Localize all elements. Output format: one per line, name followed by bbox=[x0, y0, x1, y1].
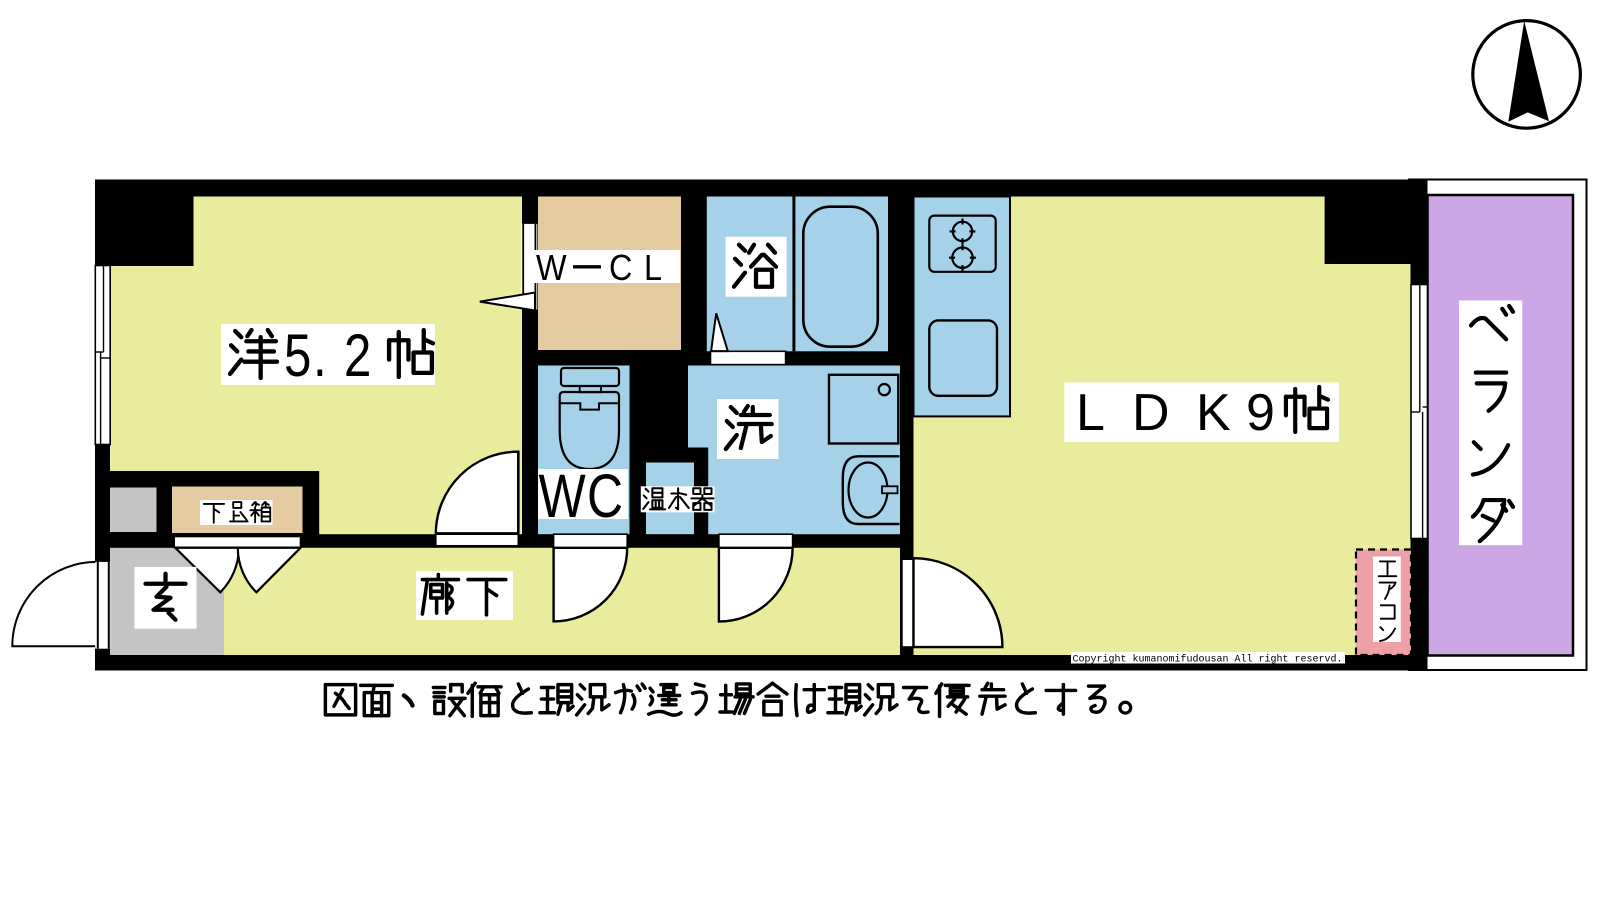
svg-text:L: L bbox=[644, 248, 662, 288]
svg-text:C: C bbox=[609, 248, 632, 288]
svg-text:W: W bbox=[539, 462, 587, 530]
svg-text:W: W bbox=[536, 248, 567, 288]
svg-text:5: 5 bbox=[284, 321, 311, 389]
svg-text:.: . bbox=[313, 321, 327, 389]
svg-text:D: D bbox=[1132, 384, 1170, 442]
svg-text:L: L bbox=[1076, 384, 1105, 442]
svg-text:9: 9 bbox=[1246, 384, 1275, 442]
svg-text:K: K bbox=[1196, 384, 1231, 442]
svg-text:C: C bbox=[587, 462, 623, 530]
svg-text:Copyright kumanomifudousan All: Copyright kumanomifudousan All right res… bbox=[1073, 654, 1343, 666]
svg-text:2: 2 bbox=[344, 321, 371, 389]
